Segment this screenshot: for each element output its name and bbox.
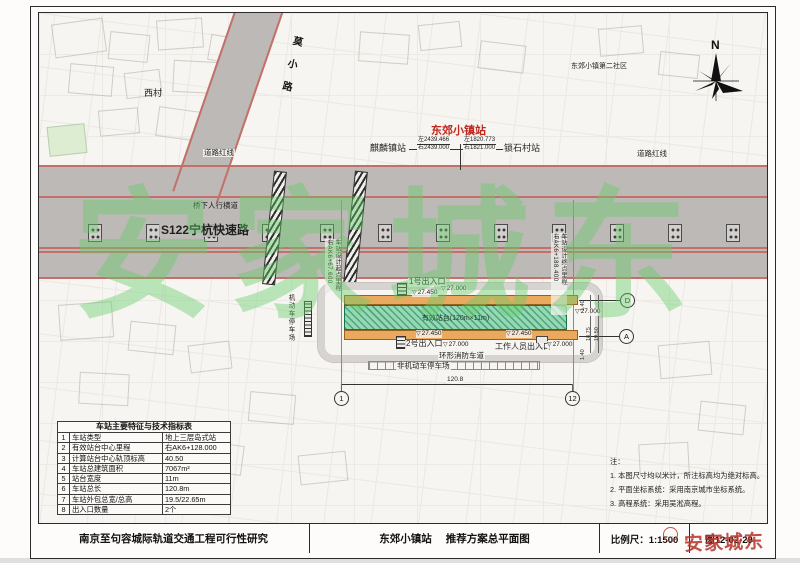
platform-label: 有效站台(120m×11m) [422, 313, 489, 323]
notes-heading: 注： [610, 455, 768, 469]
dim-1950: 19.50 [594, 327, 600, 341]
chainage-left-bottom: 右2439.000 [418, 145, 449, 151]
bridge-pier [436, 224, 450, 242]
staff-entrance-label: 工作人员出入口 [494, 343, 552, 352]
spec-row-index: 3 [58, 453, 70, 463]
road-red-line [39, 165, 767, 167]
spec-table-row: 4车站总建筑面积7067m² [58, 463, 231, 473]
entrance2-label: 2号出入口 [405, 340, 443, 349]
spec-table-row: 7车站外包总宽/总高19.5/22.65m [58, 494, 231, 504]
station-center-line [460, 154, 461, 170]
spec-table: 车站主要特征与技术指标表 1车站类型地上三层岛式站2有效站台中心里程右AK6+1… [57, 421, 231, 515]
station-platform: 有效站台(120m×11m) [344, 305, 567, 330]
bridge-pier [378, 224, 392, 242]
width-dim-line [598, 295, 599, 353]
cadastral-parcel [58, 301, 114, 341]
note-line: 3. 高程系统：采用吴淞高程。 [610, 497, 768, 511]
dim-140: 1.40 [580, 349, 586, 360]
spec-table-row: 3计算站台中心轨顶标高40.50 [58, 453, 231, 463]
dim-ext [341, 384, 342, 391]
level-27450: 27.450 [506, 330, 532, 338]
chainage-left-top: 左2439.466 [417, 137, 450, 145]
road-red-line [39, 277, 767, 279]
chainage-right: 左1820.773 右1821.000 [463, 137, 496, 152]
level-27450: 27.450 [412, 289, 438, 297]
nonmotor-parking-strip [368, 361, 540, 370]
spec-table-title: 车站主要特征与技术指标表 [58, 422, 231, 433]
cadastral-parcel [98, 107, 140, 136]
bridge-pier [668, 224, 682, 242]
ring-road-label: 环形消防车道 [438, 352, 485, 360]
note-line: 2. 平面坐标系统：采用南京城市坐标系统。 [610, 483, 768, 497]
compass-n-label: N [711, 38, 720, 52]
station-start-line [341, 200, 342, 398]
cadastral-parcel [358, 31, 410, 64]
spec-row-name: 车站外包总宽/总高 [70, 494, 163, 504]
bridge-pier [494, 224, 508, 242]
spec-row-index: 5 [58, 474, 70, 484]
spec-row-index: 6 [58, 484, 70, 494]
drawing-title: 东郊小镇站 推荐方案总平面图 [309, 524, 599, 553]
spec-row-name: 车站类型 [70, 433, 163, 443]
spec-row-value: 右AK6+128.000 [163, 443, 231, 453]
spec-table-row: 8出入口数量2个 [58, 505, 231, 515]
length-dim-line [341, 384, 573, 385]
red-line-label-left: 道路红线 [203, 149, 235, 157]
spec-row-name: 计算站台中心轨顶标高 [70, 453, 163, 463]
spec-table-row: 6车站总长120.8m [58, 484, 231, 494]
expressway-label: S122宁杭快速路 [159, 224, 251, 237]
cadastral-parcel [156, 17, 204, 50]
cadastral-parcel [658, 341, 713, 379]
spec-row-name: 车站总长 [70, 484, 163, 494]
start-chainage-label: 车站设计起点里程 右AK6+67.600 [325, 239, 341, 321]
axis-bubble-d: D [620, 293, 635, 308]
chainage-right-top: 左1820.773 [463, 137, 496, 145]
spec-table-row: 2有效站台中心里程右AK6+128.000 [58, 443, 231, 453]
spec-row-name: 站台宽度 [70, 474, 163, 484]
red-watermark-badge-icon [663, 527, 678, 542]
road-median-line [39, 247, 767, 249]
level-27000: 27.000 [575, 308, 601, 316]
cadastral-parcel [418, 21, 462, 51]
spec-row-index: 8 [58, 505, 70, 515]
cadastral-parcel [698, 401, 747, 436]
spec-row-index: 4 [58, 463, 70, 473]
cadastral-parcel [108, 31, 151, 63]
axis-bubble-1: 1 [334, 391, 349, 406]
community-label: 东郊小镇第二社区 [571, 63, 627, 71]
spec-row-name: 出入口数量 [70, 505, 163, 515]
spec-table-row: 1车站类型地上三层岛式站 [58, 433, 231, 443]
drawing-page: 莫小路 道路红线 道路红线 桥下人行横道 S122宁杭快速路 西村 东郊小镇第二… [0, 0, 800, 565]
cadastral-parcel [298, 451, 349, 486]
cadastral-parcel [248, 391, 296, 425]
expressway-road [39, 165, 767, 278]
spec-row-value: 40.50 [163, 453, 231, 463]
red-watermark: 安家城东 [684, 527, 765, 557]
spec-row-value: 7067m² [163, 463, 231, 473]
cadastral-parcel [128, 321, 177, 356]
width-dim-line [590, 295, 591, 353]
end-chainage-label: 车站设计终点里程 右AK6+188.400 [551, 233, 567, 315]
entrance1-stair [397, 283, 407, 296]
chainage-left: 左2439.466 右2439.000 [417, 137, 450, 152]
bridge-pier [726, 224, 740, 242]
station-north-band [344, 295, 578, 305]
axis-bubble-a: A [619, 329, 634, 344]
dim-140: 1.40 [580, 300, 586, 311]
diag-road-label: 莫小路 [274, 34, 304, 105]
spec-row-name: 车站总建筑面积 [70, 463, 163, 473]
spec-row-value: 11m [163, 474, 231, 484]
station-name-red: 东郊小镇站 [431, 125, 486, 137]
dim-ext [572, 384, 573, 391]
spec-row-value: 19.5/22.65m [163, 494, 231, 504]
start-note: 车站设计起点里程 [333, 239, 341, 321]
line-diagram-tick [460, 144, 461, 154]
project-title: 南京至句容城际轨道交通工程可行性研究 [38, 524, 309, 553]
spec-row-value: 2个 [163, 505, 231, 515]
cadastral-parcel [598, 25, 644, 57]
cadastral-parcel [78, 372, 130, 407]
spec-table-row: 5站台宽度11m [58, 474, 231, 484]
level-27000: 27.000 [443, 341, 469, 349]
spec-row-index: 1 [58, 433, 70, 443]
compass-rose-icon: N [685, 35, 747, 107]
title-block: 南京至句容城际轨道交通工程可行性研究 东郊小镇站 推荐方案总平面图 比例尺：1:… [38, 523, 768, 553]
level-27000: 27.000 [441, 285, 467, 293]
level-27000: 27.000 [547, 341, 573, 349]
axis-bubble-12: 12 [565, 391, 580, 406]
level-27450: 27.450 [416, 330, 442, 338]
chainage-right-bottom: 右1821.000 [464, 145, 495, 151]
end-note: 车站设计终点里程 [559, 233, 567, 315]
green-space-parcel [47, 123, 88, 157]
left-station-label: 麒麟镇站 [369, 144, 407, 154]
notes-block: 注： 1. 本图尺寸均以米计，所注标高均为绝对标高。 2. 平面坐标系统：采用南… [610, 455, 768, 511]
note-line: 1. 本图尺寸均以米计，所注标高均为绝对标高。 [610, 469, 768, 483]
bridge-pier [146, 224, 160, 242]
length-dim-value: 120.8 [446, 376, 464, 383]
start-chainage: 右AK6+67.600 [325, 239, 333, 321]
page-edge-shadow [0, 558, 800, 563]
ped-crossing-label: 桥下人行横道 [191, 202, 240, 210]
spec-row-index: 2 [58, 443, 70, 453]
cadastral-parcel [51, 18, 107, 59]
road-red-line [39, 196, 767, 198]
bridge-pier [88, 224, 102, 242]
red-line-label-right: 道路红线 [636, 150, 668, 158]
west-village-label: 西村 [144, 89, 162, 99]
spec-row-index: 7 [58, 494, 70, 504]
spec-row-value: 120.8m [163, 484, 231, 494]
bridge-pier [610, 224, 624, 242]
cadastral-parcel [68, 63, 114, 97]
side-stair [304, 301, 312, 337]
spec-row-value: 地上三层岛式站 [163, 433, 231, 443]
dim-1875: 18.75 [586, 327, 592, 341]
right-station-label: 锁石村站 [503, 144, 541, 154]
motor-parking-label: 机动车停车场 [285, 294, 295, 342]
road-median-line [39, 251, 767, 253]
drawing-station-name: 东郊小镇站 [379, 531, 432, 546]
drawing-name: 推荐方案总平面图 [446, 531, 530, 546]
end-chainage: 右AK6+188.400 [551, 233, 559, 315]
nonmotor-parking-label: 非机动车停车场 [396, 362, 451, 370]
cadastral-parcel [187, 341, 232, 374]
cadastral-parcel [477, 40, 526, 73]
spec-row-name: 有效站台中心里程 [70, 443, 163, 453]
